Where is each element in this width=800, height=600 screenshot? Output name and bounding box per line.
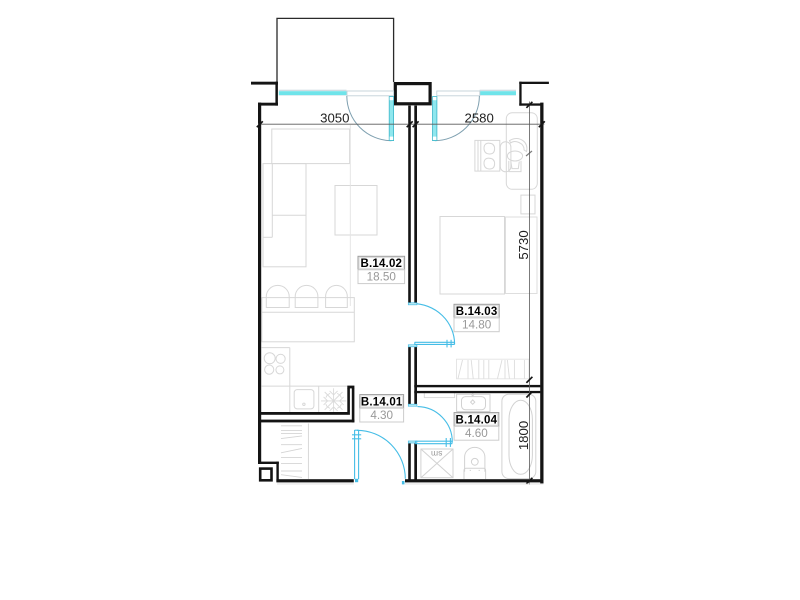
svg-text:4.60: 4.60 (465, 427, 488, 440)
svg-text:B.14.04: B.14.04 (456, 414, 498, 426)
svg-text:4.30: 4.30 (370, 409, 393, 422)
svg-text:B.14.02: B.14.02 (360, 258, 402, 270)
svg-text:1800: 1800 (516, 421, 531, 450)
svg-text:5730: 5730 (516, 230, 531, 259)
svg-text:18.50: 18.50 (367, 271, 397, 284)
svg-text:14.80: 14.80 (462, 319, 492, 332)
svg-text:B.14.03: B.14.03 (456, 306, 498, 318)
svg-text:B.14.01: B.14.01 (361, 396, 403, 408)
svg-text:3050: 3050 (320, 111, 349, 126)
svg-text:2580: 2580 (465, 111, 494, 126)
svg-text:sm: sm (431, 449, 442, 459)
